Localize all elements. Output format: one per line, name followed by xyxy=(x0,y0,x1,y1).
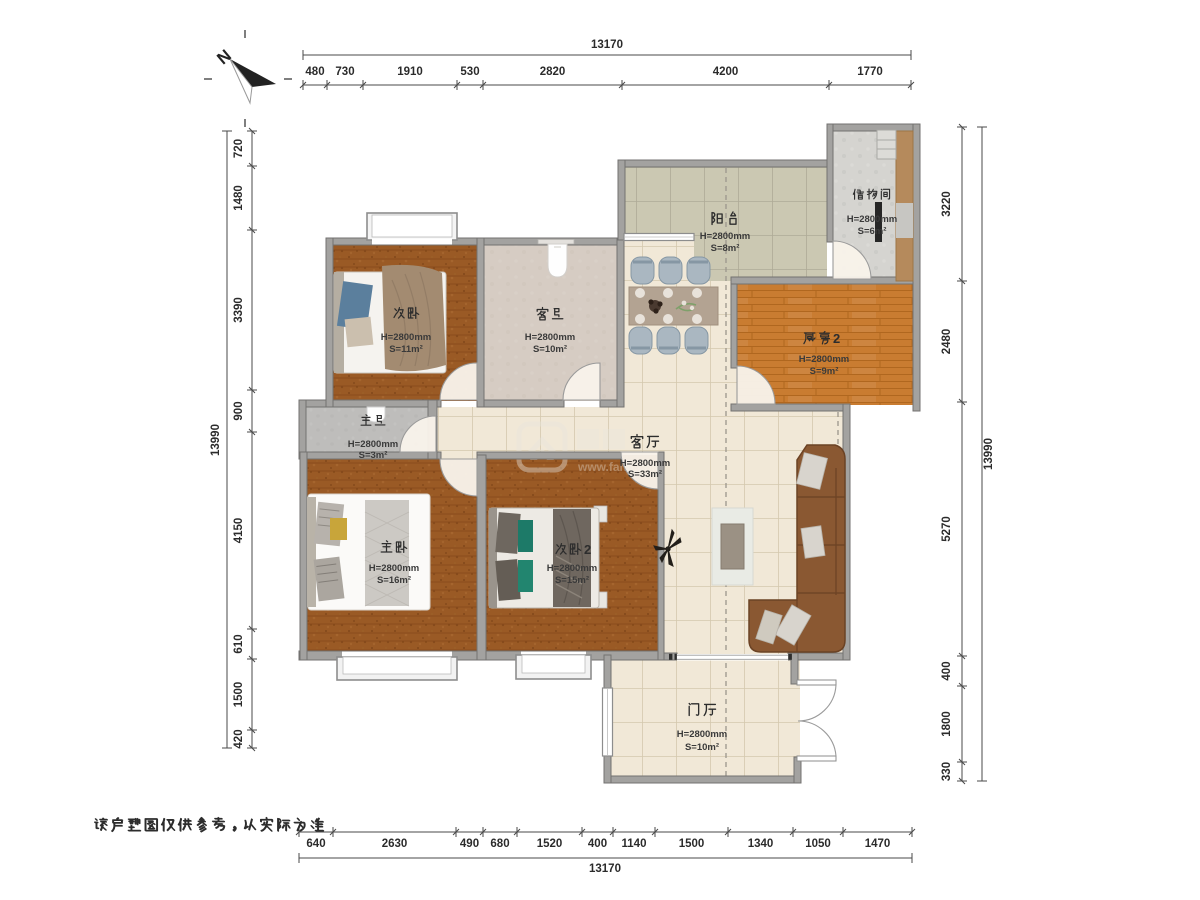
svg-text:S=3m²: S=3m² xyxy=(359,450,388,461)
svg-text:S=10m²: S=10m² xyxy=(533,344,567,355)
svg-text:H=2800mm: H=2800mm xyxy=(620,458,670,469)
svg-text:H=2800mm: H=2800mm xyxy=(547,563,597,574)
svg-text:2820: 2820 xyxy=(540,66,566,78)
svg-text:3220: 3220 xyxy=(941,191,953,217)
svg-text:H=2800mm: H=2800mm xyxy=(348,439,398,450)
svg-text:1910: 1910 xyxy=(397,66,423,78)
svg-text:420: 420 xyxy=(233,729,245,748)
svg-text:1800: 1800 xyxy=(941,711,953,737)
svg-text:2: 2 xyxy=(833,331,840,346)
svg-text:530: 530 xyxy=(460,66,479,78)
svg-text:13170: 13170 xyxy=(591,39,623,51)
svg-text:1050: 1050 xyxy=(805,838,831,850)
svg-text:S=11m²: S=11m² xyxy=(389,344,423,355)
svg-text:3390: 3390 xyxy=(233,297,245,323)
svg-text:1480: 1480 xyxy=(233,185,245,211)
svg-text:400: 400 xyxy=(941,661,953,680)
svg-text:5270: 5270 xyxy=(941,516,953,542)
svg-text:2630: 2630 xyxy=(382,838,408,850)
svg-text:2480: 2480 xyxy=(941,329,953,355)
svg-text:1500: 1500 xyxy=(679,838,705,850)
svg-text:1140: 1140 xyxy=(622,838,647,850)
svg-text:13990: 13990 xyxy=(210,424,222,456)
svg-text:680: 680 xyxy=(490,838,509,850)
svg-text:720: 720 xyxy=(233,139,245,158)
svg-text:H=2800mm: H=2800mm xyxy=(847,214,897,225)
svg-text:730: 730 xyxy=(335,66,354,78)
svg-text:13170: 13170 xyxy=(589,863,621,875)
svg-text:330: 330 xyxy=(941,762,953,781)
svg-text:S=33m²: S=33m² xyxy=(628,469,662,480)
svg-text:1520: 1520 xyxy=(537,838,563,850)
svg-text:S=6m²: S=6m² xyxy=(858,226,887,237)
svg-text:13990: 13990 xyxy=(983,438,995,470)
svg-text:H=2800mm: H=2800mm xyxy=(799,354,849,365)
svg-text:610: 610 xyxy=(233,634,245,653)
svg-text:490: 490 xyxy=(460,838,479,850)
svg-text:2: 2 xyxy=(584,542,591,557)
svg-text:H=2800mm: H=2800mm xyxy=(381,332,431,343)
svg-text:1470: 1470 xyxy=(865,838,891,850)
svg-text:H=2800mm: H=2800mm xyxy=(677,729,727,740)
svg-text:640: 640 xyxy=(306,838,325,850)
svg-text:H=2800mm: H=2800mm xyxy=(525,332,575,343)
svg-text:H=2800mm: H=2800mm xyxy=(369,563,419,574)
svg-text:S=15m²: S=15m² xyxy=(555,575,589,586)
svg-text:1770: 1770 xyxy=(857,66,883,78)
svg-text:S=9m²: S=9m² xyxy=(810,366,839,377)
svg-text:480: 480 xyxy=(305,66,324,78)
svg-text:S=10m²: S=10m² xyxy=(685,742,719,753)
svg-text:S=8m²: S=8m² xyxy=(711,243,740,254)
svg-text:H=2800mm: H=2800mm xyxy=(700,231,750,242)
svg-text:400: 400 xyxy=(588,838,607,850)
svg-text:4150: 4150 xyxy=(233,518,245,544)
svg-text:4200: 4200 xyxy=(713,66,739,78)
svg-text:1500: 1500 xyxy=(233,682,245,708)
svg-text:S=16m²: S=16m² xyxy=(377,575,411,586)
svg-text:900: 900 xyxy=(233,401,245,420)
svg-text:1340: 1340 xyxy=(748,838,774,850)
